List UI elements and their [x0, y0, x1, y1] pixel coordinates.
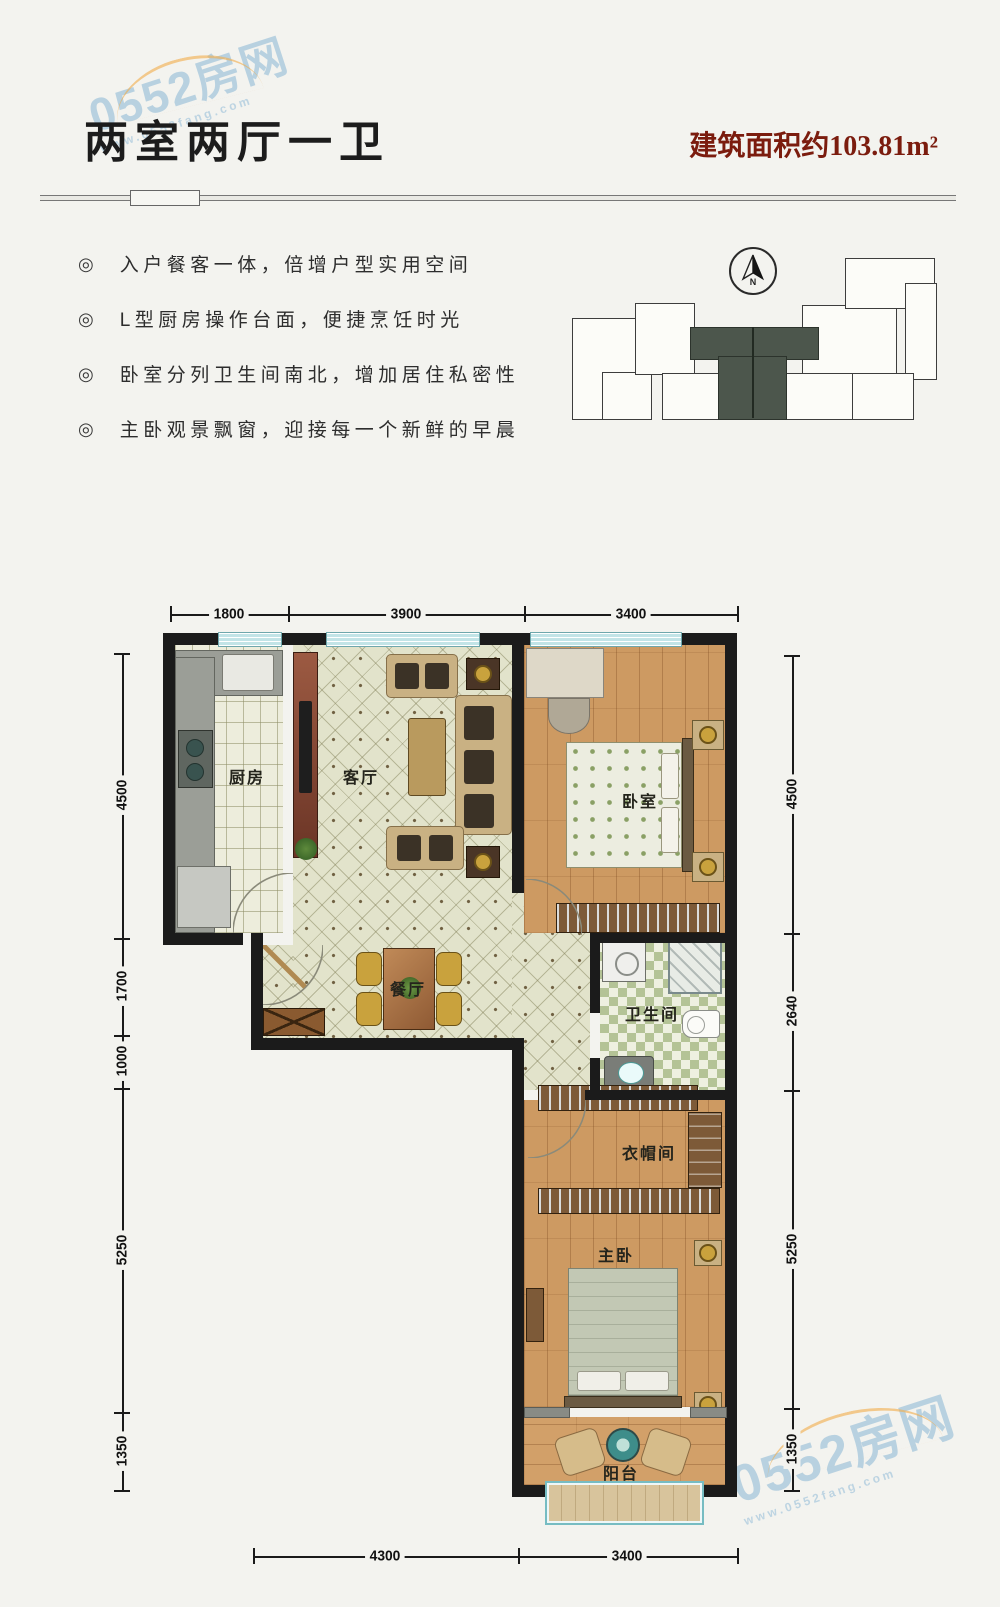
dim-tick: [288, 606, 290, 622]
living-window: [326, 632, 480, 647]
floorplan-flyer: 0552房网 www.0552fang.com 两室两厅一卫 建筑面积约103.…: [0, 0, 1000, 1607]
feature-text: L型厨房操作台面，便捷烹饪时光: [120, 305, 464, 332]
dim-tick: [784, 1490, 800, 1492]
refrigerator: [177, 866, 231, 928]
room-label-bathroom: 卫生间: [625, 1001, 679, 1025]
dim-label: 3900: [386, 606, 426, 623]
list-item: ◎ 卧室分列卫生间南北，增加居住私密性: [78, 346, 548, 401]
wall: [590, 933, 600, 1013]
wall: [251, 1038, 524, 1050]
dim-label: 3400: [607, 1548, 647, 1565]
wall: [251, 933, 263, 1050]
coffee-table: [408, 718, 446, 796]
site-building: [905, 283, 937, 380]
compass-north-label: N: [750, 277, 757, 287]
wall: [585, 1090, 737, 1100]
feature-text: 卧室分列卫生间南北，增加居住私密性: [120, 360, 520, 387]
compass-icon: N: [729, 247, 777, 295]
washing-machine: [602, 942, 646, 982]
room-label-balcony: 阳台: [603, 1460, 639, 1484]
dim-tick: [253, 1548, 255, 1564]
wall: [512, 1038, 524, 1497]
side-table: [466, 846, 500, 878]
site-building: [635, 303, 695, 375]
dim-label: 1350: [114, 1431, 131, 1471]
feature-text: 入户餐客一体，倍增户型实用空间: [120, 250, 473, 277]
bathroom-sink: [604, 1056, 654, 1088]
nightstand: [692, 852, 724, 882]
dining-chair: [356, 952, 382, 986]
desk: [526, 648, 604, 698]
dim-tick: [784, 655, 800, 657]
room-label-bedroom: 卧室: [622, 788, 658, 812]
wall: [590, 1058, 600, 1090]
dim-label: 5250: [784, 1229, 801, 1269]
dim-label: 1000: [114, 1041, 131, 1081]
list-item: ◎ 入户餐客一体，倍增户型实用空间: [78, 236, 548, 291]
cloakroom-wardrobe: [688, 1112, 722, 1188]
wall: [512, 645, 524, 893]
watermark-url: www.0552fang.com: [742, 1444, 966, 1527]
dim-label: 4500: [784, 774, 801, 814]
dim-label: 1700: [114, 966, 131, 1006]
dim-tick: [114, 938, 130, 940]
wall: [725, 633, 737, 1497]
sofa-chaise-bottom: [386, 826, 464, 870]
bullet-icon: ◎: [78, 310, 94, 328]
shoe-cabinet: [263, 1008, 325, 1036]
unit-divider: [752, 327, 754, 418]
dim-tick: [114, 1088, 130, 1090]
dim-label: 1350: [784, 1429, 801, 1469]
dim-label: 5250: [114, 1230, 131, 1270]
bedroom-window: [530, 632, 682, 647]
dim-tick: [737, 1548, 739, 1564]
dim-tick: [518, 1548, 520, 1564]
sofa-loveseat-top: [386, 654, 458, 698]
dim-tick: [784, 933, 800, 935]
room-label-dining: 餐厅: [390, 976, 426, 1000]
stove: [178, 730, 213, 788]
master-headboard: [564, 1396, 682, 1408]
dining-chair: [436, 992, 462, 1026]
balcony-bay-window: [545, 1481, 704, 1525]
balcony-table: [606, 1428, 640, 1462]
dining-chair: [356, 992, 382, 1026]
entry-door: [263, 945, 323, 1005]
site-building: [662, 373, 722, 420]
dim-tick: [170, 606, 172, 622]
feature-list: ◎ 入户餐客一体，倍增户型实用空间 ◎ L型厨房操作台面，便捷烹饪时光 ◎ 卧室…: [78, 236, 548, 456]
sofa-main: [455, 695, 512, 835]
room-label-cloakroom: 衣帽间: [622, 1140, 676, 1164]
desk-chair: [548, 698, 590, 734]
site-building: [852, 373, 914, 420]
wall: [163, 633, 175, 945]
nightstand: [692, 720, 724, 750]
bullet-icon: ◎: [78, 365, 94, 383]
shower: [668, 938, 722, 994]
kitchen-sink: [222, 654, 274, 691]
side-table: [466, 658, 500, 690]
nightstand: [694, 1240, 722, 1266]
partial-wall: [690, 1407, 727, 1418]
master-bed: [568, 1268, 678, 1396]
dim-tick: [524, 606, 526, 622]
tv-cabinet: [293, 652, 318, 858]
dim-tick: [114, 1412, 130, 1414]
list-item: ◎ 主卧观景飘窗，迎接每一个新鲜的早晨: [78, 401, 548, 456]
header-divider-box: [130, 190, 200, 206]
kitchen-window: [218, 632, 282, 647]
dim-line-bottom: [253, 1556, 737, 1558]
cloakroom-rack-bottom: [538, 1188, 720, 1214]
list-item: ◎ L型厨房操作台面，便捷烹饪时光: [78, 291, 548, 346]
dim-tick: [784, 1090, 800, 1092]
dim-line-top: [170, 614, 738, 616]
cloakroom-door: [528, 1100, 586, 1158]
dim-label: 4300: [365, 1548, 405, 1565]
toilet: [682, 1010, 720, 1038]
dim-label: 2640: [784, 991, 801, 1031]
watermark-bottom-right: 0552房网 www.0552fang.com: [725, 1391, 966, 1527]
site-building: [602, 372, 652, 420]
dim-tick: [737, 606, 739, 622]
partial-wall: [524, 1407, 570, 1418]
dining-chair: [436, 952, 462, 986]
page-title: 两室两厅一卫: [84, 106, 390, 170]
bullet-icon: ◎: [78, 255, 94, 273]
building-area: 建筑面积约103.81m²: [560, 124, 938, 164]
plant: [295, 838, 317, 860]
dim-label: 1800: [209, 606, 249, 623]
bedroom-door: [526, 879, 582, 935]
dim-label: 4500: [114, 775, 131, 815]
kitchen-door: [233, 873, 293, 933]
dim-tick: [114, 653, 130, 655]
room-label-master: 主卧: [598, 1242, 634, 1266]
room-label-living: 客厅: [343, 764, 379, 788]
bullet-icon: ◎: [78, 420, 94, 438]
wall: [163, 933, 243, 945]
room-label-kitchen: 厨房: [229, 764, 265, 788]
site-building: [785, 373, 854, 420]
dim-tick: [114, 1035, 130, 1037]
watermark-brand: 0552房网: [725, 1391, 961, 1512]
dim-tick: [784, 1408, 800, 1410]
wall: [590, 933, 737, 943]
dim-tick: [114, 1490, 130, 1492]
dim-label: 3400: [611, 606, 651, 623]
master-dresser: [526, 1288, 544, 1342]
feature-text: 主卧观景飘窗，迎接每一个新鲜的早晨: [120, 415, 520, 442]
